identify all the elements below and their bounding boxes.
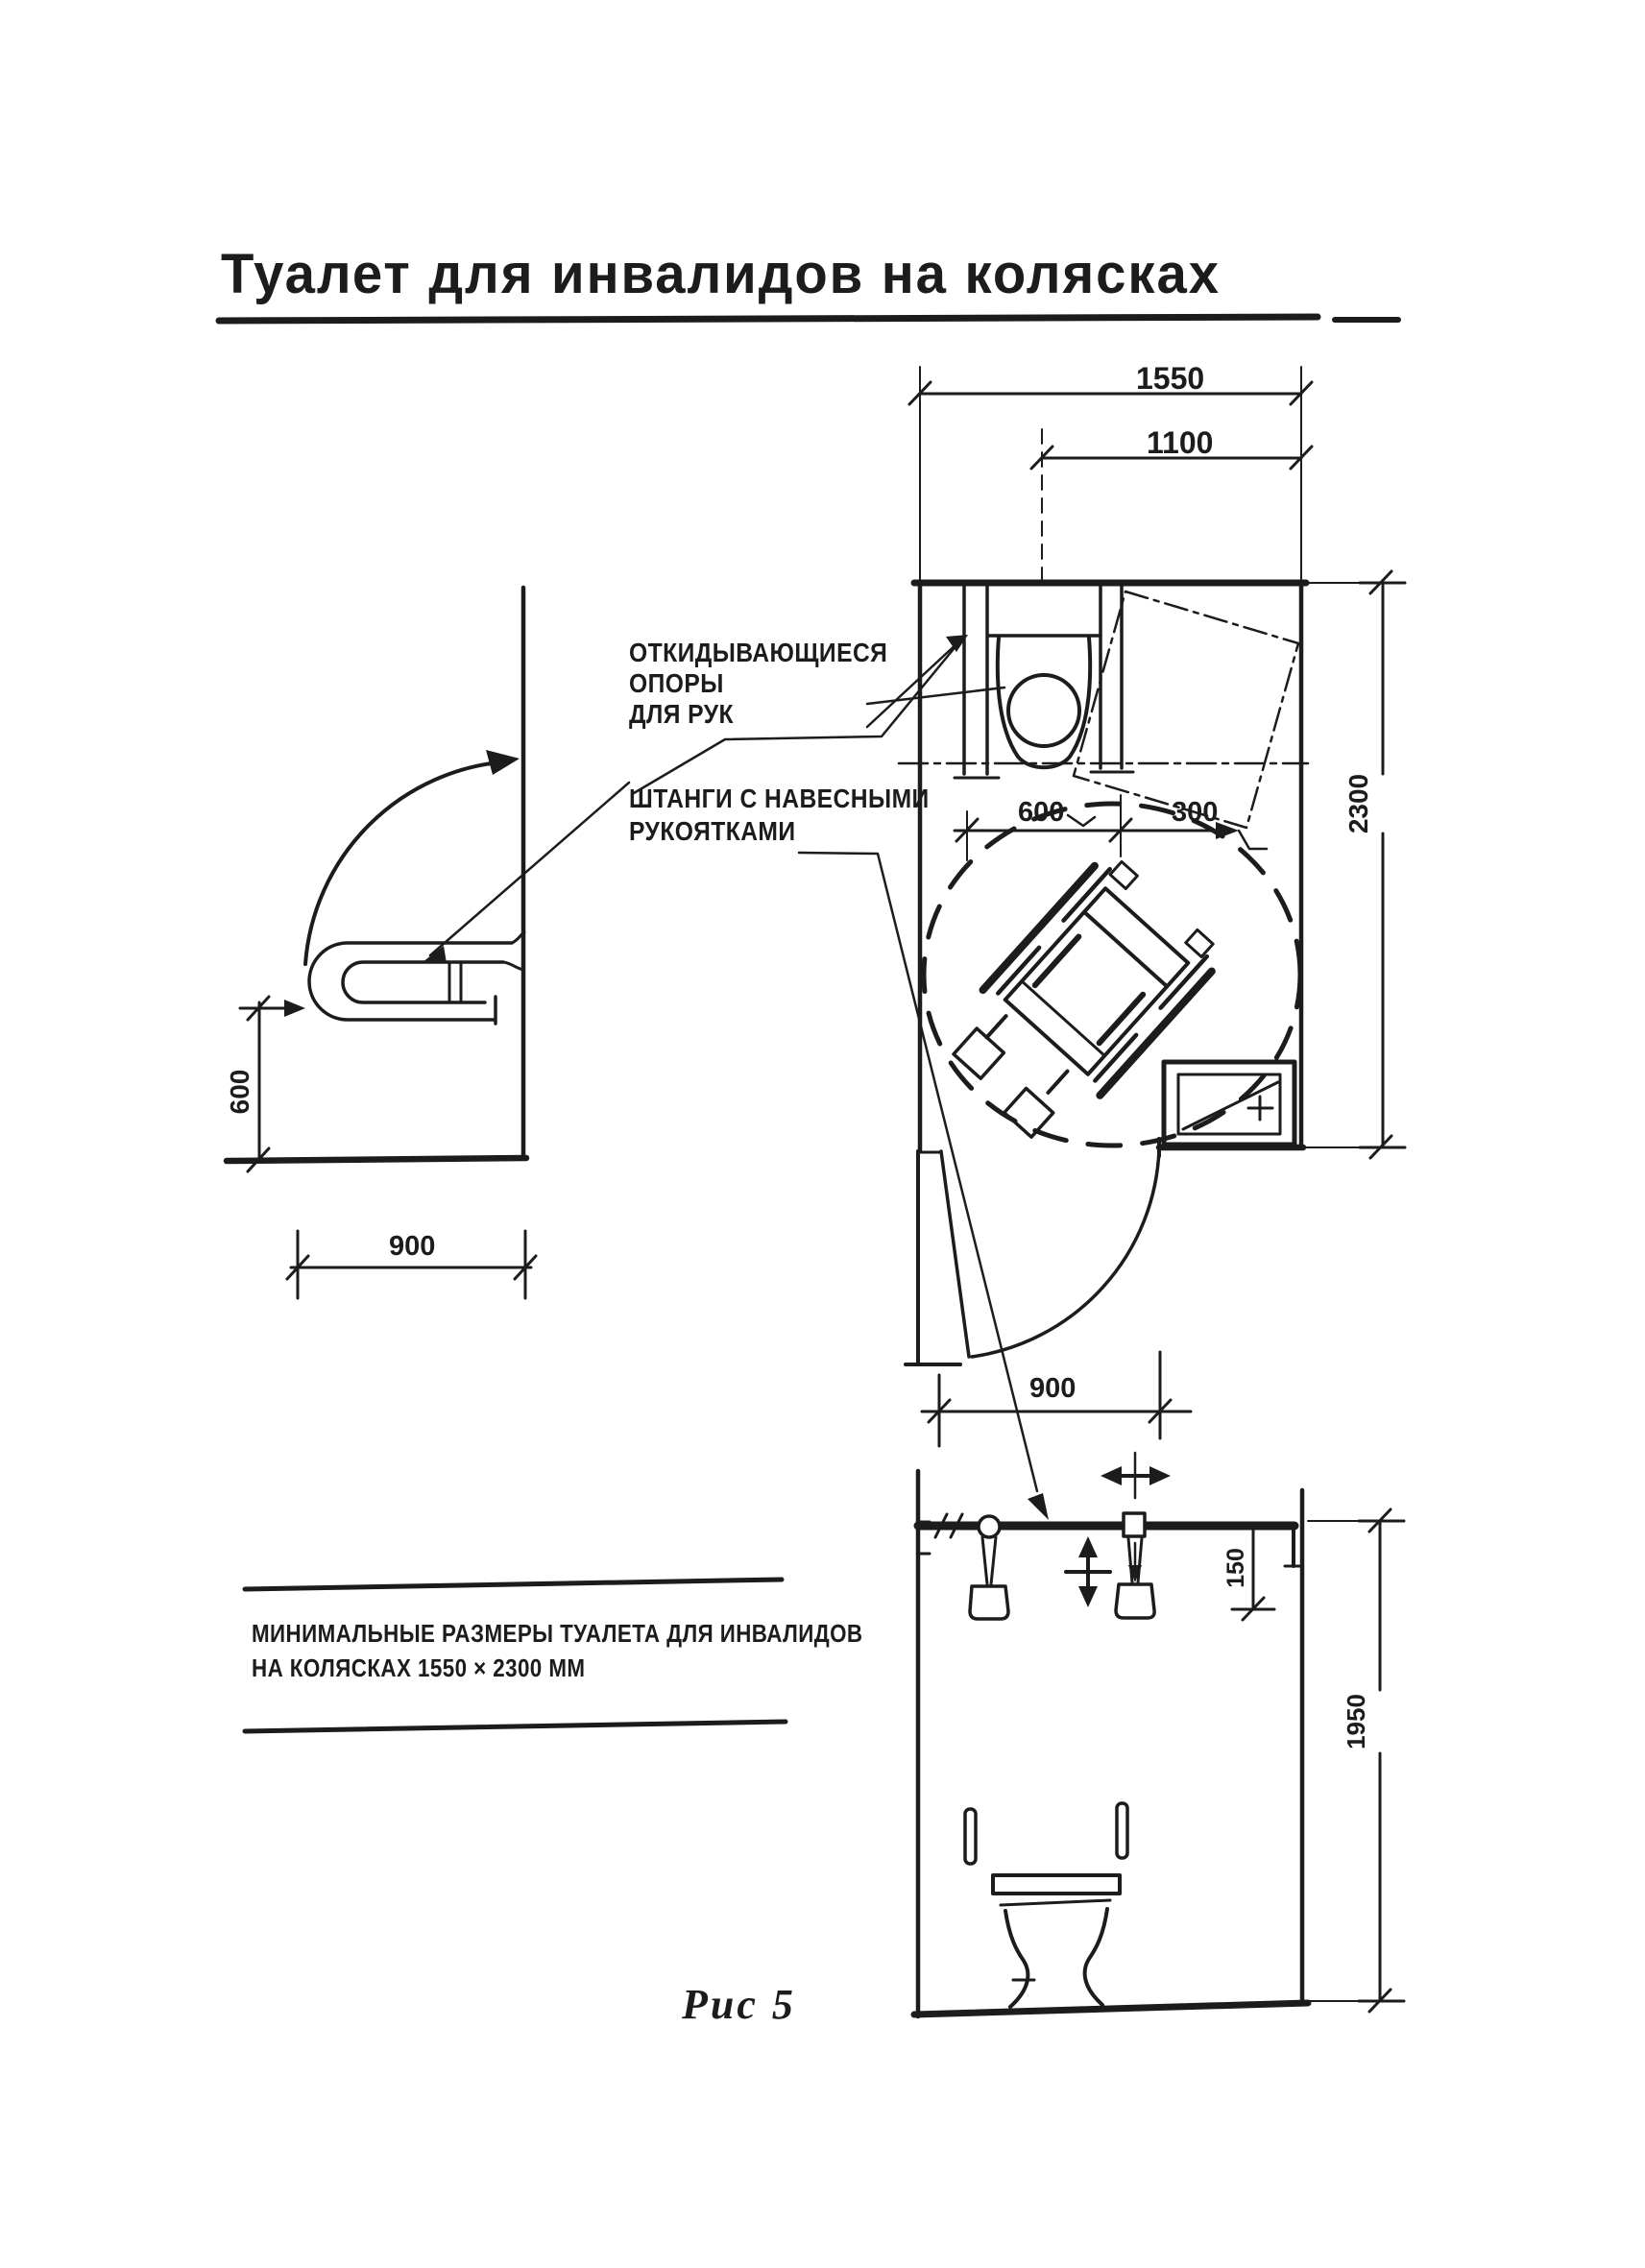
annotation-folding-supports-line1: ОТКИДЫВАЮЩИЕСЯ [629, 638, 887, 668]
label-door-width: 900 [1029, 1373, 1076, 1405]
dimension-room-depth [1306, 571, 1405, 1158]
annotation-folding-supports-line3: ДЛЯ РУК [629, 699, 734, 730]
note-line1: МИНИМАЛЬНЫЕ РАЗМЕРЫ ТУАЛЕТА ДЛЯ ИНВАЛИДО… [252, 1619, 863, 1649]
slide-arrow-vertical [1066, 1536, 1110, 1607]
drawing-page: Туалет для инвалидов на колясках ОТКИДЫВ… [0, 0, 1645, 2268]
toilet-plan [989, 636, 1101, 767]
figure-caption: Рис 5 [682, 1980, 796, 2029]
hanging-handle-left [970, 1516, 1008, 1619]
annotation-hanging-rods-line1: ШТАНГИ С НАВЕСНЫМИ [629, 784, 930, 814]
folding-supports-plan [955, 585, 1133, 778]
wall-bracket-left [965, 1809, 976, 1864]
label-handle-drop: 150 [1221, 1525, 1251, 1611]
label-toilet-axis-offset: 600 [1018, 797, 1064, 829]
floor-line-side [227, 1158, 526, 1161]
wall-bracket-right [1117, 1803, 1127, 1858]
arc-arrowhead [486, 750, 520, 775]
label-basin-offset: 300 [1172, 797, 1218, 829]
page-title: Туалет для инвалидов на колясках [221, 242, 1221, 306]
leader-lines [423, 635, 1049, 1520]
title-underline [219, 317, 1398, 321]
elevation-view [914, 1453, 1404, 2016]
floor-line-elevation [914, 2003, 1308, 2015]
label-room-width: 1550 [1136, 361, 1204, 397]
washbasin [1164, 1062, 1294, 1145]
door-swing-arc [972, 1149, 1159, 1357]
annotation-hanging-rods-line2: РУКОЯТКАМИ [629, 816, 796, 847]
dimension-room-width [909, 367, 1312, 580]
label-support-height: 600 [225, 1049, 255, 1135]
wheelchair [931, 850, 1226, 1152]
label-rod-height: 1950 [1341, 1678, 1371, 1765]
label-room-depth: 2300 [1343, 760, 1374, 847]
turning-circle [924, 804, 1300, 1146]
note-line2: НА КОЛЯСКАХ 1550 × 2300 ММ [252, 1653, 585, 1683]
label-support-length: 900 [389, 1231, 435, 1263]
plan-view [899, 583, 1308, 1364]
toilet-front [993, 1875, 1120, 2007]
annotation-folding-supports-line2: ОПОРЫ [629, 668, 724, 699]
folding-support-rail [309, 932, 524, 1024]
wheelchair-alt-position [1074, 591, 1298, 828]
slide-arrow-horizontal [1101, 1453, 1171, 1498]
label-door-clearance: 1100 [1147, 425, 1213, 461]
side-view [227, 588, 536, 1298]
support-swing-arc [305, 761, 509, 964]
